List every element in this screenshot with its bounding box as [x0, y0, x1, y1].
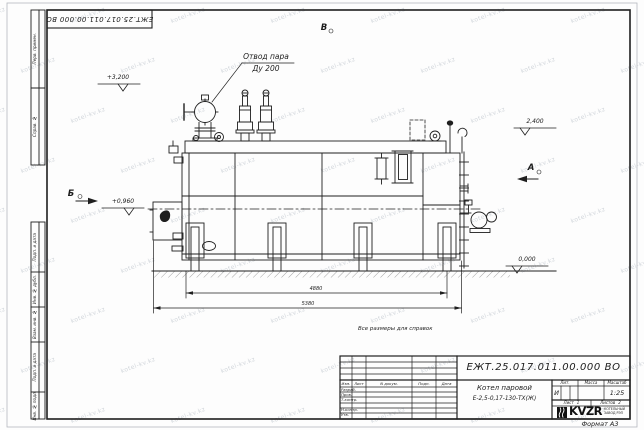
col-podp: Подп. — [412, 381, 436, 387]
safety-valves — [215, 90, 276, 142]
margin-cell-vzam-inv: Взам. инв. № — [31, 307, 40, 342]
callout-steam-outlet-line2: Ду 200 — [234, 64, 298, 74]
elevation-left-mid: +0,960 — [102, 197, 144, 206]
drum-top-fittings — [410, 120, 467, 153]
drawing-sheet: kotel-kv.kzkotel-kv.kzkotel-kv.kzkotel-k… — [0, 0, 644, 430]
rear-pump-unit — [460, 184, 497, 233]
col-list: Лист — [352, 381, 366, 387]
ground-line — [152, 271, 556, 278]
steam-outlet-valve — [184, 95, 218, 141]
title-product-name-line2: Е-2,5-0,17-130-ТХ(Ж) — [458, 394, 551, 406]
dim-inner: 4880 — [296, 285, 336, 293]
elevation-ground: 0,000 — [506, 255, 548, 264]
scale-value: 1:25 — [604, 387, 630, 399]
boiler-supports — [186, 223, 456, 271]
row-utv: Утв. — [341, 413, 366, 418]
boiler-body — [148, 141, 480, 260]
col-data: Дата — [436, 381, 457, 387]
company-logo: KVZR КОТЕЛЬНЫЙ ЗАВОД РЭП — [553, 407, 629, 418]
rear-ladder — [460, 152, 469, 268]
kvzr-logo-icon — [557, 407, 567, 418]
margin-cell-podp-data-1: Подп. и дата — [31, 222, 40, 272]
view-label-v: В — [317, 23, 331, 33]
logo-wordmark: KVZR — [569, 406, 602, 418]
format-label: Формат А3 — [555, 420, 644, 429]
dim-overall: 5380 — [288, 300, 328, 308]
margin-cell-inv-dubl: Инв. № дубл. — [31, 272, 40, 307]
col-doc: N докум. — [366, 381, 412, 387]
margin-cell-sprav-no: Справ. № — [31, 88, 40, 165]
row-tkontr: Т.контр. — [341, 398, 366, 403]
mass-label: Масса — [578, 380, 604, 386]
elevation-marks — [98, 84, 556, 273]
logo-caption: КОТЕЛЬНЫЙ ЗАВОД РЭП — [604, 408, 625, 416]
view-label-b: Б — [64, 189, 78, 199]
reference-note: Все размеры для справок — [358, 326, 458, 334]
top-stamp: ЕЖТ.25.017.011.00.000 ВО — [47, 10, 152, 28]
margin-cell-podp-data-2: Подп. и дата — [31, 342, 40, 392]
margin-cell-inv-podl: Инв. № подл. — [31, 392, 40, 419]
lit-label: Лит. — [552, 380, 578, 386]
title-doc-number: ЕЖТ.25.017.011.00.000 ВО — [458, 357, 629, 379]
title-product-name-line1: Котел паровой — [458, 382, 551, 394]
elevation-right-top: 2,400 — [514, 117, 556, 126]
level-gauges — [375, 151, 413, 184]
view-label-a: А — [524, 163, 538, 173]
elevation-top: +3,200 — [96, 73, 140, 82]
margin-cell-perv-primen: Перв. примен. — [31, 10, 40, 88]
scale-label: Масштаб — [604, 380, 630, 386]
col-izm: Изм. — [340, 381, 352, 387]
view-arrows — [76, 29, 541, 204]
lit-value: И — [552, 387, 561, 399]
callout-steam-outlet-line1: Отвод пара — [234, 52, 298, 62]
